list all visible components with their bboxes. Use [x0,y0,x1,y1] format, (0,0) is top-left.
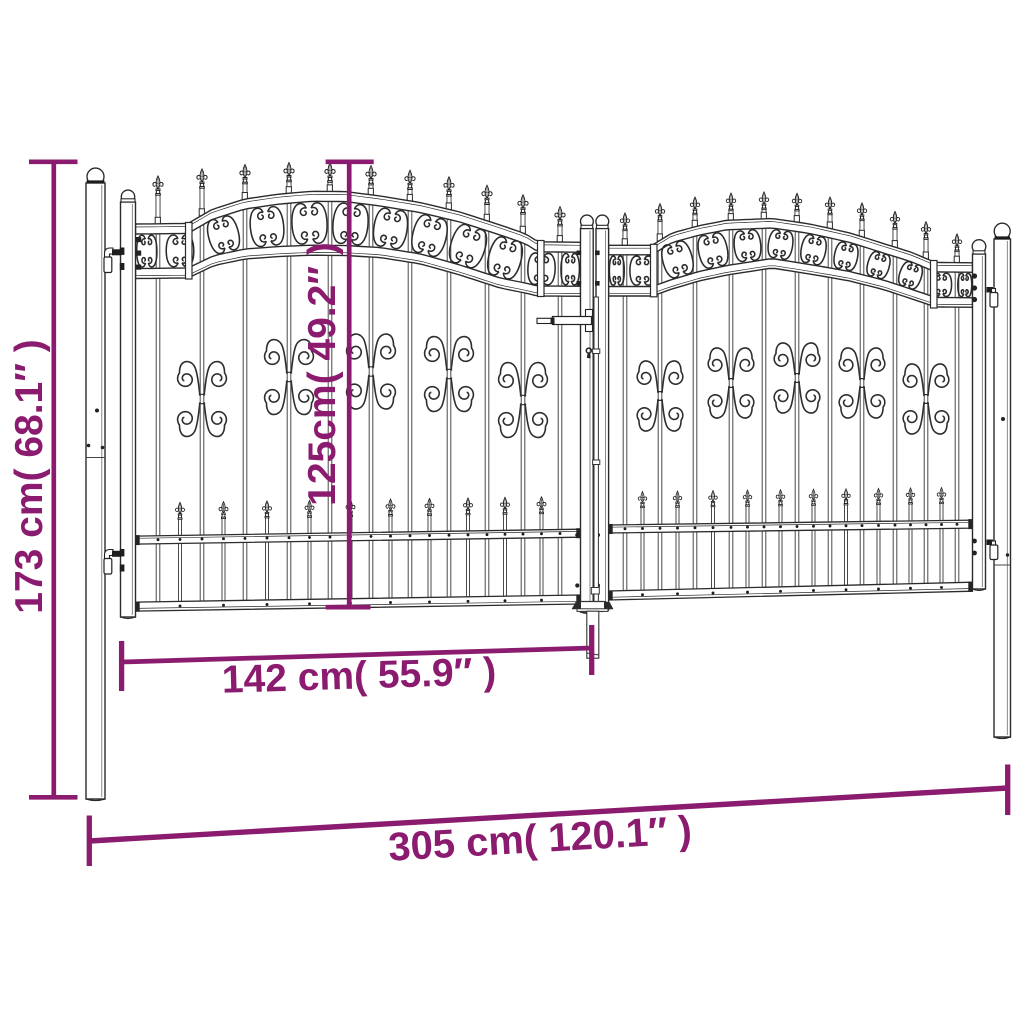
svg-text:142 cm( 55.9″ ): 142 cm( 55.9″ ) [221,650,497,702]
svg-text:125cm( 49.2″ ): 125cm( 49.2″ ) [301,242,344,506]
svg-text:173 cm( 68.1″ ): 173 cm( 68.1″ ) [8,339,51,614]
